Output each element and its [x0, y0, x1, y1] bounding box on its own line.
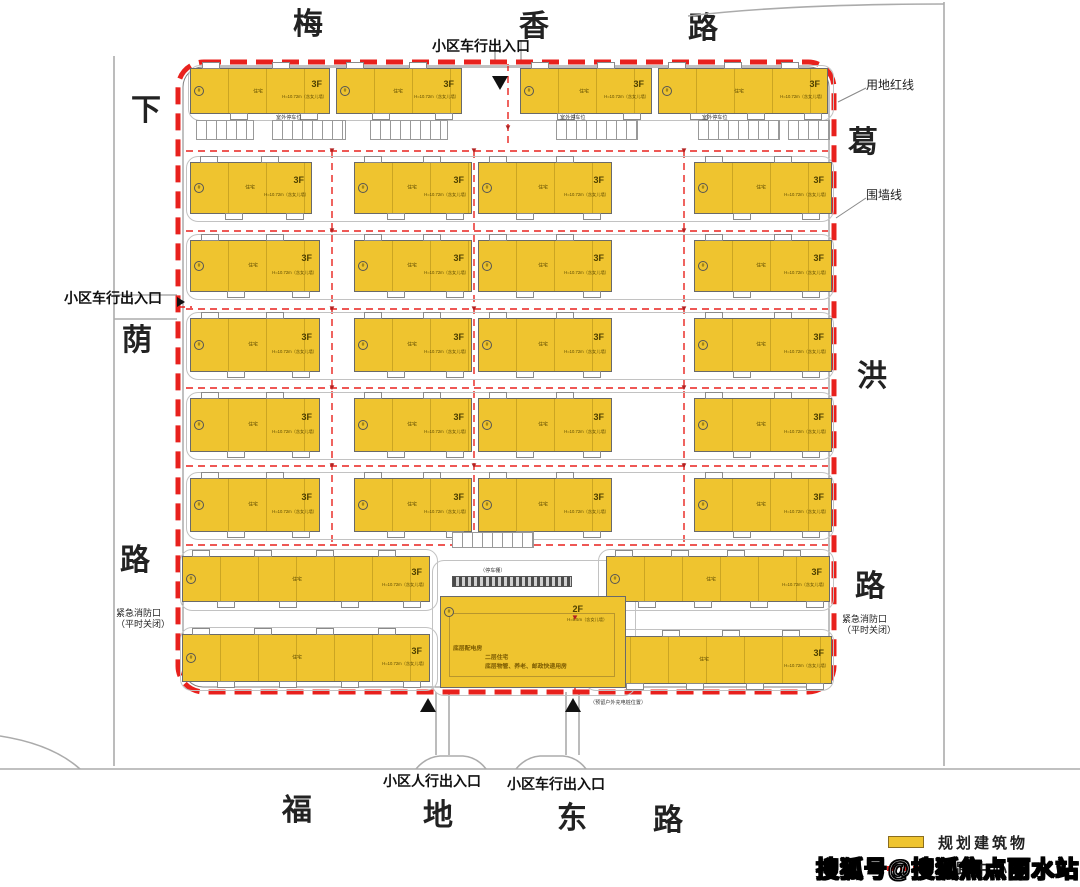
balcony-bump — [733, 531, 751, 538]
building-type-label: 住宅 — [706, 575, 716, 582]
balcony-bump — [583, 451, 601, 458]
building-block: #住宅3FH=10.72m（含女儿墙） — [190, 318, 320, 372]
building-number-marker: # — [698, 261, 708, 271]
height-label: H=10.72m（含女儿墙） — [564, 508, 609, 514]
building-block: #住宅3FH=10.72m（含女儿墙） — [190, 68, 330, 114]
balcony-bump — [279, 601, 297, 608]
balcony-bump — [230, 113, 248, 120]
balcony-bump — [774, 392, 792, 399]
building-type-label: 住宅 — [734, 87, 744, 94]
floor-label: 3F — [813, 649, 824, 658]
building-type-label: 住宅 — [538, 340, 548, 347]
balcony-bump — [423, 392, 441, 399]
balcony-bump — [192, 550, 210, 557]
height-label: H=10.72m（含女儿墙） — [604, 93, 649, 99]
balcony-bump — [200, 156, 218, 163]
balcony-bump — [341, 681, 359, 688]
balcony-bump — [300, 113, 318, 120]
height-label: H=10.72m（含女儿墙） — [424, 269, 469, 275]
height-label: H=10.72m（含女儿墙） — [414, 93, 459, 99]
floor-label: 3F — [813, 254, 824, 263]
balcony-bump — [583, 213, 601, 220]
building-type-label: 住宅 — [249, 500, 259, 507]
building-block: #住宅3FH=10.72m（含女儿墙） — [182, 634, 430, 682]
balcony-bump — [774, 156, 792, 163]
floor-label: 3F — [453, 493, 464, 502]
building-number-marker: # — [482, 340, 492, 350]
balcony-bump — [435, 113, 453, 120]
building-type-label: 住宅 — [756, 420, 766, 427]
building-block: #住宅3FH=10.72m（含女儿墙） — [336, 68, 462, 114]
entrance-bottom-vehicle-label: 小区车行出入口 — [507, 774, 605, 794]
building-type-label: 住宅 — [249, 340, 259, 347]
building-number-marker: # — [194, 500, 204, 510]
entrance-left-label: 小区车行出入口 — [64, 288, 162, 308]
balcony-bump — [387, 291, 405, 298]
height-label: H=10.72m（含女儿墙） — [564, 191, 609, 197]
building-number-marker: # — [194, 420, 204, 430]
hydrant-marker: ▼ — [328, 305, 336, 313]
height-label: H=10.72m（含女儿墙） — [424, 428, 469, 434]
balcony-bump — [516, 371, 534, 378]
building-number-marker: # — [482, 500, 492, 510]
balcony-bump — [225, 213, 243, 220]
building-type-label: 住宅 — [579, 87, 589, 94]
building-type-label: 住宅 — [253, 87, 263, 94]
building-number-marker: # — [698, 500, 708, 510]
balcony-bump — [733, 291, 751, 298]
height-label: H=10.72m（含女儿墙） — [272, 269, 317, 275]
balcony-bump — [254, 628, 272, 635]
balcony-bump — [774, 312, 792, 319]
watermark: 搜狐号@搜狐焦点丽水站 — [816, 850, 1079, 884]
height-label: H=10.72m（含女儿墙） — [784, 428, 829, 434]
building-number-marker: # — [358, 420, 368, 430]
balcony-bump — [387, 531, 405, 538]
floor-label: 3F — [301, 333, 312, 342]
height-label: H=10.72m（含女儿墙） — [264, 191, 309, 197]
balcony-bump — [750, 601, 768, 608]
balcony-bump — [583, 371, 601, 378]
building-number-marker: # — [340, 86, 350, 96]
building-type-label: 住宅 — [756, 261, 766, 268]
building-type-label: 住宅 — [407, 183, 417, 190]
building-number-marker: # — [524, 86, 534, 96]
balcony-bump — [446, 213, 464, 220]
hydrant-marker: ▼ — [571, 614, 579, 622]
balcony-bump — [341, 601, 359, 608]
balcony-bump — [201, 234, 219, 241]
building-block: #住宅3FH=10.72m（含女儿墙） — [694, 318, 832, 372]
floor-label: 3F — [593, 176, 604, 185]
height-label: H=10.72m（含女儿墙） — [784, 348, 829, 354]
height-label: H=10.72m（含女儿墙） — [424, 191, 469, 197]
entrance-top-label: 小区车行出入口 — [432, 36, 530, 56]
balcony-bump — [802, 291, 820, 298]
building-block: #住宅3FH=10.72m（含女儿墙） — [478, 398, 612, 452]
balcony-bump — [364, 472, 382, 479]
building-block: #住宅3FH=10.72m（含女儿墙） — [658, 68, 828, 114]
balcony-bump — [378, 550, 396, 557]
balcony-bump — [722, 630, 740, 637]
site-plan: #住宅3FH=10.72m（含女儿墙）#住宅3FH=10.72m（含女儿墙）#住… — [0, 0, 1080, 887]
balcony-bump — [615, 550, 633, 557]
balcony-bump — [292, 451, 310, 458]
hydrant-marker: ▼ — [470, 305, 478, 313]
balcony-bump — [254, 550, 272, 557]
building-type-label: 住宅 — [393, 87, 403, 94]
balcony-bump — [364, 392, 382, 399]
building-type-label: 住宅 — [699, 655, 709, 662]
balcony-bump — [516, 213, 534, 220]
floor-label: 3F — [813, 176, 824, 185]
balcony-bump — [746, 683, 764, 690]
balcony-bump — [387, 451, 405, 458]
balcony-bump — [516, 291, 534, 298]
hydrant-marker: ▼ — [680, 384, 688, 392]
balcony-bump — [423, 312, 441, 319]
height-label: H=10.72m（含女儿墙） — [382, 660, 427, 666]
hydrant-marker: ▼ — [680, 305, 688, 313]
central-building-text-2: 二层住宅 — [485, 652, 508, 661]
building-block: #住宅3FH=10.72m（含女儿墙） — [592, 636, 832, 684]
height-label: H=10.72m（含女儿墙） — [564, 348, 609, 354]
balcony-bump — [364, 312, 382, 319]
height-label: H=10.72m（含女儿墙） — [564, 269, 609, 275]
building-number-marker: # — [482, 261, 492, 271]
hydrant-marker: ▼ — [504, 124, 512, 132]
balcony-bump — [217, 681, 235, 688]
height-label: H=10.72m（含女儿墙） — [784, 269, 829, 275]
balcony-bump — [266, 392, 284, 399]
building-number-marker: # — [698, 340, 708, 350]
balcony-bump — [804, 113, 822, 120]
building-type-label: 住宅 — [292, 575, 302, 582]
floor-label: 3F — [301, 254, 312, 263]
balcony-bump — [668, 62, 686, 69]
parking-stalls — [196, 120, 254, 140]
floor-label: 3F — [311, 80, 322, 89]
balcony-bump — [671, 550, 689, 557]
floor-label: 3F — [443, 80, 454, 89]
parking-stalls — [698, 120, 780, 140]
balcony-bump — [802, 451, 820, 458]
building-block: #住宅3FH=10.72m（含女儿墙） — [354, 318, 472, 372]
balcony-bump — [201, 472, 219, 479]
height-label: H=10.72m（含女儿墙） — [382, 581, 427, 587]
balcony-bump — [556, 234, 574, 241]
balcony-bump — [409, 62, 427, 69]
balcony-bump — [556, 312, 574, 319]
height-label: H=10.72m（含女儿墙） — [784, 662, 829, 668]
balcony-bump — [531, 62, 549, 69]
height-label: H=10.72m（含女儿墙） — [272, 428, 317, 434]
emergency-exit-left: 紧急消防口 （平时关闭） — [116, 608, 170, 631]
building-type-label: 住宅 — [538, 261, 548, 268]
balcony-bump — [227, 531, 245, 538]
wall-line-label: 围墙线 — [866, 186, 902, 203]
building-number-marker: # — [186, 653, 196, 663]
balcony-bump — [694, 601, 712, 608]
balcony-bump — [201, 312, 219, 319]
building-type-label: 住宅 — [407, 420, 417, 427]
floor-label: 3F — [293, 176, 304, 185]
balcony-bump — [747, 113, 765, 120]
balcony-bump — [556, 472, 574, 479]
balcony-bump — [403, 681, 421, 688]
balcony-bump — [364, 156, 382, 163]
balcony-bump — [364, 234, 382, 241]
hydrant-marker: ▼ — [680, 227, 688, 235]
height-label: H=10.72m（含女儿墙） — [784, 191, 829, 197]
building-block: #住宅3FH=10.72m（含女儿墙） — [694, 478, 832, 532]
floor-label: 3F — [633, 80, 644, 89]
balcony-bump — [774, 234, 792, 241]
building-number-marker: # — [194, 86, 204, 96]
balcony-bump — [802, 531, 820, 538]
central-service-building: #2FH=8.5m（含女儿墙）底层配电房二层住宅底层物管、养老、邮政快递用房 — [440, 596, 626, 688]
building-block: #住宅3FH=10.72m（含女儿墙） — [478, 318, 612, 372]
floor-label: 3F — [809, 80, 820, 89]
balcony-bump — [705, 392, 723, 399]
building-type-label: 住宅 — [756, 340, 766, 347]
balcony-bump — [316, 550, 334, 557]
building-type-label: 住宅 — [538, 500, 548, 507]
balcony-bump — [378, 628, 396, 635]
balcony-bump — [489, 312, 507, 319]
hydrant-marker: ▼ — [470, 147, 478, 155]
entrance-bottom-pedestrian-label: 小区人行出入口 — [383, 771, 481, 791]
floor-label: 3F — [453, 333, 464, 342]
plan-content-layer: #住宅3FH=10.72m（含女儿墙）#住宅3FH=10.72m（含女儿墙）#住… — [0, 0, 1080, 887]
parking-stalls — [272, 120, 346, 140]
balcony-bump — [423, 234, 441, 241]
balcony-bump — [516, 451, 534, 458]
hydrant-marker: ▼ — [470, 462, 478, 470]
building-number-marker: # — [698, 420, 708, 430]
balcony-bump — [202, 62, 220, 69]
emergency-exit-right: 紧急消防口 （平时关闭） — [842, 614, 896, 637]
balcony-bump — [556, 392, 574, 399]
balcony-bump — [774, 472, 792, 479]
building-type-label: 住宅 — [249, 261, 259, 268]
central-building-text-1: 底层配电房 — [453, 643, 482, 652]
parking-stalls — [370, 120, 448, 140]
height-label: H=10.72m（含女儿墙） — [564, 428, 609, 434]
building-block: #住宅3FH=10.72m（含女儿墙） — [354, 398, 472, 452]
floor-label: 3F — [593, 493, 604, 502]
floor-label: 3F — [813, 493, 824, 502]
floor-label: 3F — [411, 568, 422, 577]
bike-carport-strip — [452, 576, 572, 587]
balcony-bump — [686, 683, 704, 690]
carport-label: （停车棚） — [480, 566, 506, 574]
balcony-bump — [705, 156, 723, 163]
building-block: #住宅3FH=10.72m（含女儿墙） — [190, 240, 320, 292]
building-number-marker: # — [698, 183, 708, 193]
hydrant-marker: ▼ — [328, 384, 336, 392]
floor-label: 3F — [813, 333, 824, 342]
building-type-label: 住宅 — [756, 183, 766, 190]
balcony-bump — [292, 291, 310, 298]
balcony-bump — [626, 683, 644, 690]
building-block: #住宅3FH=10.72m（含女儿墙） — [694, 240, 832, 292]
height-label: H=10.72m（含女儿墙） — [272, 348, 317, 354]
balcony-bump — [705, 472, 723, 479]
outdoor-parking-label: 室外停车位 — [560, 113, 586, 121]
legend-building-swatch — [888, 836, 924, 848]
balcony-bump — [446, 291, 464, 298]
balcony-bump — [266, 312, 284, 319]
height-label: H=10.72m（含女儿墙） — [782, 581, 827, 587]
building-type-label: 住宅 — [407, 500, 417, 507]
building-number-marker: # — [482, 420, 492, 430]
entrance-arrow-down — [492, 76, 508, 90]
balcony-bump — [705, 234, 723, 241]
outdoor-parking-label: 室外停车位 — [702, 113, 728, 121]
floor-label: 3F — [811, 568, 822, 577]
balcony-bump — [446, 371, 464, 378]
balcony-bump — [446, 451, 464, 458]
floor-label: 3F — [593, 413, 604, 422]
balcony-bump — [583, 531, 601, 538]
building-type-label: 住宅 — [538, 183, 548, 190]
parking-stalls — [788, 120, 830, 140]
balcony-bump — [192, 628, 210, 635]
balcony-bump — [261, 156, 279, 163]
building-type-label: 住宅 — [538, 420, 548, 427]
building-type-label: 住宅 — [249, 420, 259, 427]
floor-label: 3F — [593, 333, 604, 342]
building-type-label: 住宅 — [292, 653, 302, 660]
floor-label: 3F — [453, 254, 464, 263]
building-block: #住宅3FH=10.72m（含女儿墙） — [182, 556, 430, 602]
building-block: #住宅3FH=10.72m（含女儿墙） — [478, 162, 612, 214]
ev-charging-label: （预留户外充电桩位置） — [590, 698, 646, 706]
land-red-line-label: 用地红线 — [866, 76, 914, 93]
floor-label: 3F — [813, 413, 824, 422]
balcony-bump — [806, 683, 824, 690]
building-block: #住宅3FH=10.72m（含女儿墙） — [478, 240, 612, 292]
height-label: H=10.72m（含女儿墙） — [784, 508, 829, 514]
balcony-bump — [724, 62, 742, 69]
balcony-bump — [316, 628, 334, 635]
building-block: #住宅3FH=10.72m（含女儿墙） — [190, 162, 312, 214]
height-label: H=10.72m（含女儿墙） — [424, 508, 469, 514]
balcony-bump — [489, 392, 507, 399]
hydrant-marker: ▼ — [680, 462, 688, 470]
balcony-bump — [802, 213, 820, 220]
building-type-label: 住宅 — [407, 340, 417, 347]
hydrant-marker: ▼ — [328, 147, 336, 155]
balcony-bump — [781, 62, 799, 69]
balcony-bump — [727, 550, 745, 557]
balcony-bump — [387, 213, 405, 220]
floor-label: 3F — [453, 176, 464, 185]
building-type-label: 住宅 — [756, 500, 766, 507]
balcony-bump — [292, 531, 310, 538]
building-block: #住宅3FH=10.72m（含女儿墙） — [354, 240, 472, 292]
entrance-arrow-up — [565, 698, 581, 712]
floor-label: 3F — [301, 413, 312, 422]
building-number-marker: # — [358, 500, 368, 510]
balcony-bump — [423, 472, 441, 479]
parking-stalls — [556, 120, 638, 140]
floor-label: 3F — [411, 647, 422, 656]
balcony-bump — [489, 234, 507, 241]
balcony-bump — [806, 601, 824, 608]
building-number-marker: # — [482, 183, 492, 193]
building-block: #住宅3FH=10.72m（含女儿墙） — [606, 556, 830, 602]
balcony-bump — [403, 601, 421, 608]
building-block: #住宅3FH=10.72m（含女儿墙） — [190, 478, 320, 532]
floor-label: 3F — [593, 254, 604, 263]
building-block: #住宅3FH=10.72m（含女儿墙） — [520, 68, 652, 114]
entrance-arrow-right — [177, 297, 185, 307]
building-number-marker: # — [194, 340, 204, 350]
building-number-marker: # — [358, 340, 368, 350]
building-block: #住宅3FH=10.72m（含女儿墙） — [694, 162, 832, 214]
balcony-bump — [346, 62, 364, 69]
balcony-bump — [286, 213, 304, 220]
building-number-marker: # — [358, 261, 368, 271]
balcony-bump — [733, 451, 751, 458]
balcony-bump — [733, 371, 751, 378]
building-block: #住宅3FH=10.72m（含女儿墙） — [190, 398, 320, 452]
balcony-bump — [556, 156, 574, 163]
balcony-bump — [227, 371, 245, 378]
balcony-bump — [266, 472, 284, 479]
parking-stalls — [452, 532, 534, 548]
building-block: #住宅3FH=10.72m（含女儿墙） — [354, 162, 472, 214]
balcony-bump — [227, 291, 245, 298]
building-number-marker: # — [358, 183, 368, 193]
building-block: #住宅3FH=10.72m（含女儿墙） — [478, 478, 612, 532]
balcony-bump — [292, 371, 310, 378]
balcony-bump — [802, 371, 820, 378]
balcony-bump — [201, 392, 219, 399]
building-number-marker: # — [186, 574, 196, 584]
height-label: H=10.72m（含女儿墙） — [780, 93, 825, 99]
balcony-bump — [217, 601, 235, 608]
balcony-bump — [662, 630, 680, 637]
outdoor-parking-label: 室外停车位 — [276, 113, 302, 121]
building-number-marker: # — [444, 607, 454, 617]
balcony-bump — [227, 451, 245, 458]
balcony-bump — [638, 601, 656, 608]
building-block: #住宅3FH=10.72m（含女儿墙） — [694, 398, 832, 452]
balcony-bump — [387, 371, 405, 378]
height-label: H=10.72m（含女儿墙） — [282, 93, 327, 99]
balcony-bump — [489, 472, 507, 479]
building-number-marker: # — [194, 183, 204, 193]
hydrant-marker: ▼ — [680, 147, 688, 155]
balcony-bump — [783, 550, 801, 557]
balcony-bump — [423, 156, 441, 163]
balcony-bump — [705, 312, 723, 319]
height-label: H=10.72m（含女儿墙） — [272, 508, 317, 514]
balcony-bump — [266, 234, 284, 241]
central-building-text-3: 底层物管、养老、邮政快递用房 — [485, 661, 567, 670]
floor-label: 3F — [301, 493, 312, 502]
building-number-marker: # — [194, 261, 204, 271]
building-number-marker: # — [662, 86, 672, 96]
balcony-bump — [733, 213, 751, 220]
building-block: #住宅3FH=10.72m（含女儿墙） — [354, 478, 472, 532]
building-number-marker: # — [610, 574, 620, 584]
building-type-label: 住宅 — [407, 261, 417, 268]
balcony-bump — [372, 113, 390, 120]
